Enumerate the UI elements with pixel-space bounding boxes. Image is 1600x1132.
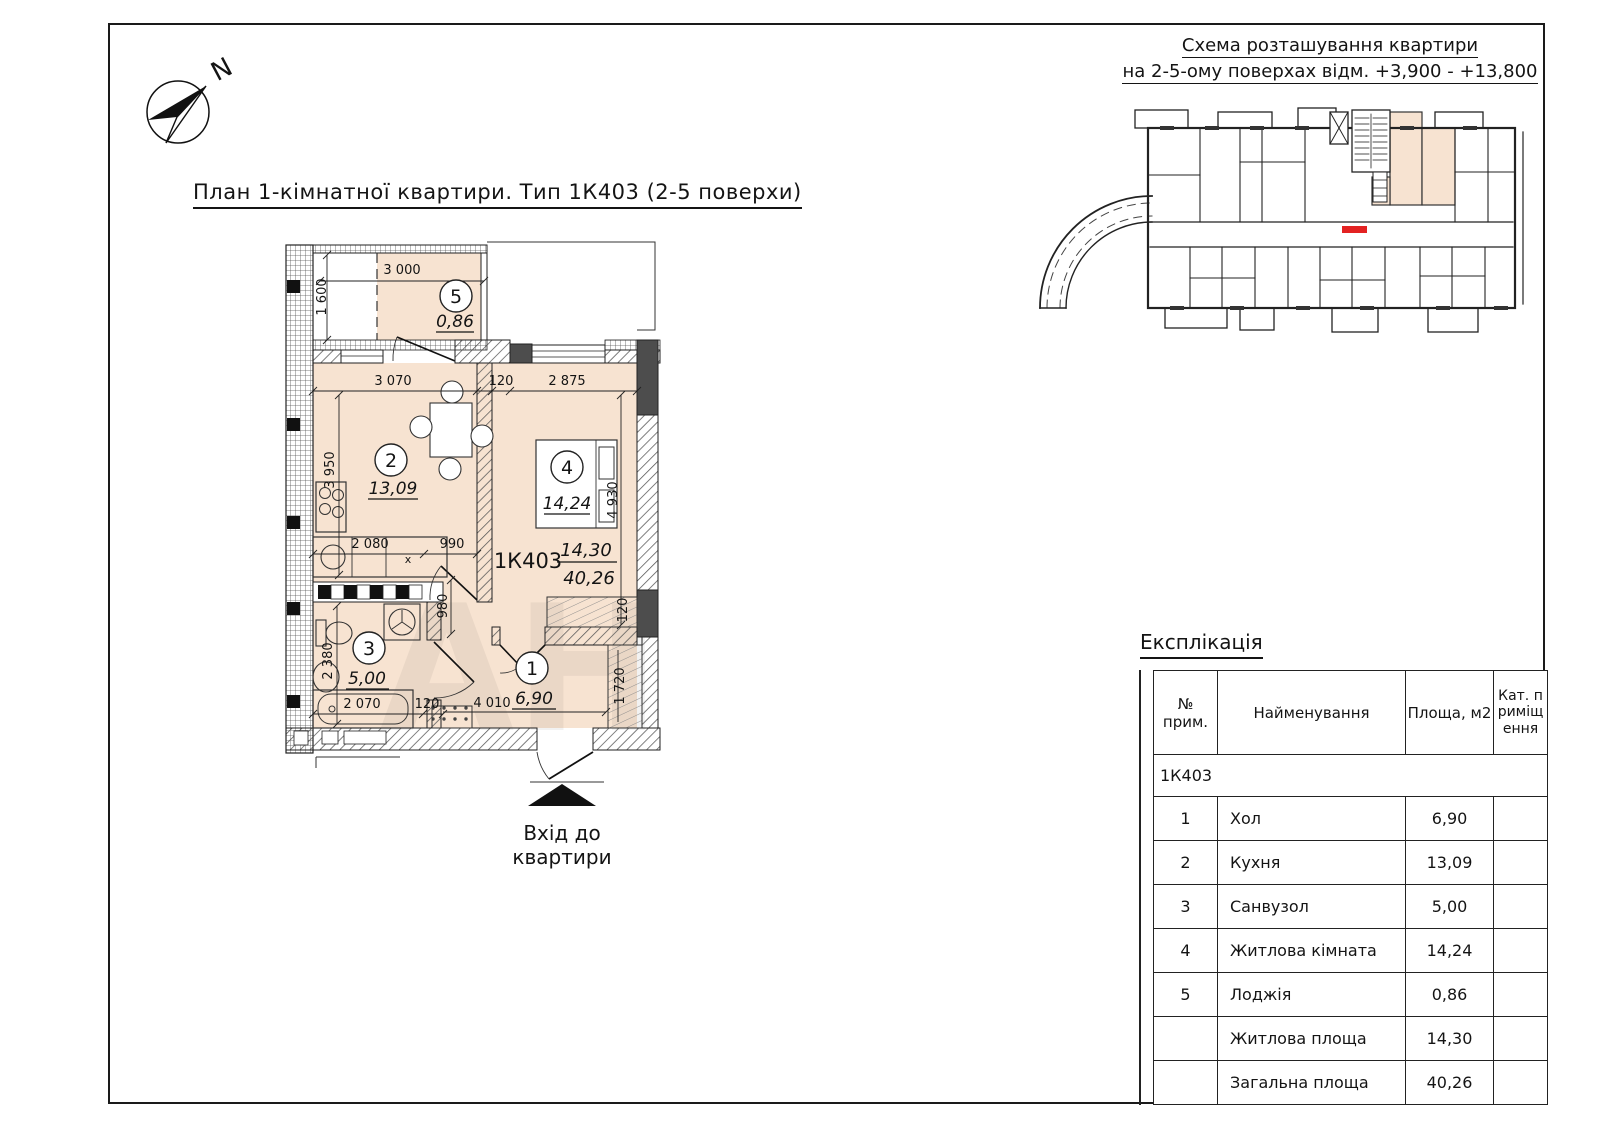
scheme-title-line2: на 2-5-ому поверхах відм. +3,900 - +13,8… bbox=[1122, 61, 1537, 84]
room1-area: 6,90 bbox=[515, 689, 553, 709]
row1-area: 6,90 bbox=[1406, 797, 1494, 841]
north-compass-icon: N bbox=[147, 52, 238, 143]
dim-room4-depth: 4 930 bbox=[606, 481, 621, 518]
dim-loggia-width: 3 000 bbox=[383, 263, 420, 278]
living-total-category bbox=[1494, 1017, 1548, 1061]
row5-area: 0,86 bbox=[1406, 973, 1494, 1017]
grand-total-area: 40,26 bbox=[1406, 1061, 1494, 1105]
dim-wardrobe-depth: 1 720 bbox=[613, 667, 628, 704]
floor-plan: АН bbox=[286, 242, 661, 869]
apartment-code: 1К403 bbox=[494, 549, 562, 573]
dim-loggia-depth: 1 600 bbox=[315, 278, 330, 315]
row4-name: Житлова кімната bbox=[1218, 929, 1406, 973]
dim-pass-width: 990 bbox=[440, 537, 465, 552]
dim-bath-width: 2 070 bbox=[343, 697, 380, 712]
row3-number: 3 bbox=[1154, 885, 1218, 929]
room3-number: 3 bbox=[363, 638, 375, 660]
col-header-category: Кат. приміщення bbox=[1494, 671, 1548, 755]
grand-total-category bbox=[1494, 1061, 1548, 1105]
dim-hall-width: 4 010 bbox=[473, 696, 510, 711]
entry-label-line2: квартири bbox=[512, 845, 611, 869]
dim-wall-120c: 120 bbox=[616, 598, 631, 623]
row5-number: 5 bbox=[1154, 973, 1218, 1017]
counter-x-mark: x bbox=[405, 553, 412, 566]
building-scheme bbox=[1040, 108, 1523, 332]
dim-wall-120b: 120 bbox=[415, 697, 440, 712]
entry-label-line1: Вхід до bbox=[523, 821, 600, 845]
row4-category bbox=[1494, 929, 1548, 973]
row5-name: Лоджія bbox=[1218, 973, 1406, 1017]
row4-area: 14,24 bbox=[1406, 929, 1494, 973]
room4-area: 14,24 bbox=[543, 494, 592, 514]
col-header-area: Площа, м2 bbox=[1406, 671, 1494, 755]
room3-area: 5,00 bbox=[348, 669, 386, 689]
room5-area: 0,86 bbox=[436, 312, 474, 332]
row1-name: Хол bbox=[1218, 797, 1406, 841]
apartment-entrance-marker bbox=[1342, 226, 1367, 233]
living-area-value: 14,30 bbox=[560, 540, 612, 561]
room1-number: 1 bbox=[526, 658, 538, 680]
dim-kitchen-width: 3 070 bbox=[374, 374, 411, 389]
row2-name: Кухня bbox=[1218, 841, 1406, 885]
north-label: N bbox=[206, 52, 237, 88]
dim-kitchen-depth: 3 950 bbox=[323, 451, 338, 488]
row3-category bbox=[1494, 885, 1548, 929]
dim-bath-depth: 2 380 bbox=[321, 642, 336, 679]
room5-number: 5 bbox=[450, 286, 462, 308]
living-total-number bbox=[1154, 1017, 1218, 1061]
explication-table: № прим. Найменування Площа, м2 Кат. прим… bbox=[1139, 670, 1548, 1105]
living-total-area: 14,30 bbox=[1406, 1017, 1494, 1061]
row2-category bbox=[1494, 841, 1548, 885]
grand-total-name: Загальна площа bbox=[1218, 1061, 1406, 1105]
row3-area: 5,00 bbox=[1406, 885, 1494, 929]
row5-category bbox=[1494, 973, 1548, 1017]
dim-room4-width: 2 875 bbox=[548, 374, 585, 389]
col-header-number: № прим. bbox=[1154, 671, 1218, 755]
table-group-row: 1К403 bbox=[1154, 755, 1548, 797]
stairs-icon bbox=[1352, 110, 1390, 202]
row1-category bbox=[1494, 797, 1548, 841]
row3-name: Санвузол bbox=[1218, 885, 1406, 929]
room4-number: 4 bbox=[561, 457, 573, 479]
col-header-name: Найменування bbox=[1218, 671, 1406, 755]
dim-niche-depth: 980 bbox=[436, 594, 451, 619]
total-area-value: 40,26 bbox=[563, 568, 615, 589]
room2-area: 13,09 bbox=[369, 479, 418, 499]
dim-wall-120a: 120 bbox=[489, 374, 514, 389]
row2-area: 13,09 bbox=[1406, 841, 1494, 885]
dim-counter-width: 2 080 bbox=[351, 537, 388, 552]
row4-number: 4 bbox=[1154, 929, 1218, 973]
living-total-name: Житлова площа bbox=[1218, 1017, 1406, 1061]
row1-number: 1 bbox=[1154, 797, 1218, 841]
explication-heading: Експлікація bbox=[1140, 630, 1263, 654]
room2-number: 2 bbox=[385, 450, 397, 472]
explication-heading-text: Експлікація bbox=[1140, 630, 1263, 659]
scheme-title-line1: Схема розташування квартири bbox=[1182, 35, 1478, 58]
grand-total-number bbox=[1154, 1061, 1218, 1105]
plan-title-text: План 1-кімнатної квартири. Тип 1К403 (2-… bbox=[193, 180, 802, 209]
scheme-title: Схема розташування квартири на 2-5-ому п… bbox=[1120, 33, 1540, 85]
plan-title: План 1-кімнатної квартири. Тип 1К403 (2-… bbox=[193, 180, 802, 204]
row2-number: 2 bbox=[1154, 841, 1218, 885]
elevator-icon bbox=[1330, 112, 1348, 144]
